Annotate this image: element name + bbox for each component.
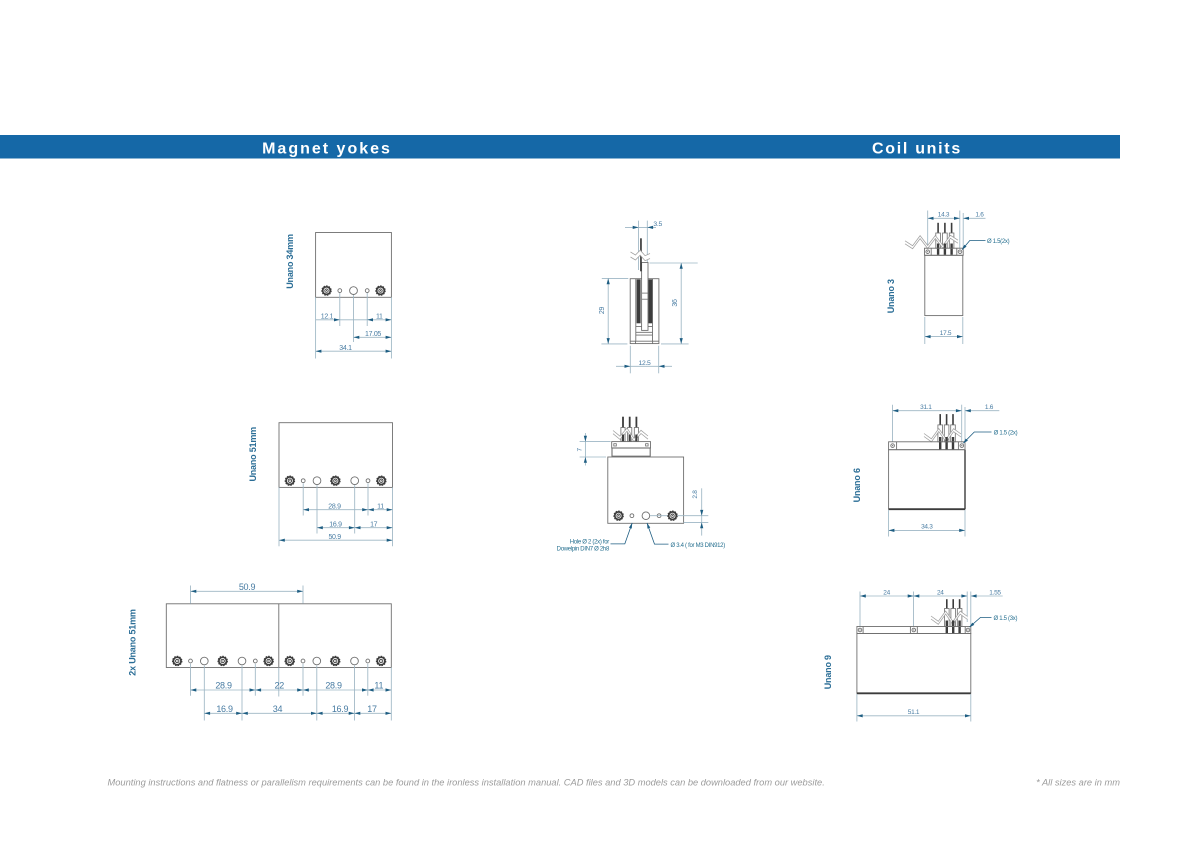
svg-text:11: 11 (376, 314, 383, 321)
svg-text:Ø 1.5 (3x): Ø 1.5 (3x) (994, 616, 1018, 622)
svg-text:2.8: 2.8 (692, 490, 699, 499)
svg-text:17.05: 17.05 (365, 331, 381, 338)
svg-text:31.1: 31.1 (920, 404, 932, 411)
svg-text:Unano 34mm: Unano 34mm (285, 234, 295, 289)
svg-text:50.9: 50.9 (239, 582, 256, 592)
svg-text:17: 17 (370, 521, 378, 528)
svg-text:16.9: 16.9 (216, 704, 233, 714)
svg-text:3.5: 3.5 (653, 221, 662, 228)
svg-text:14.3: 14.3 (938, 211, 950, 218)
svg-text:Unano 6: Unano 6 (852, 468, 862, 502)
svg-text:Coil units: Coil units (872, 141, 962, 158)
svg-text:28.9: 28.9 (325, 681, 342, 691)
svg-text:17.5: 17.5 (940, 330, 952, 337)
svg-text:34: 34 (273, 704, 283, 714)
svg-text:24: 24 (937, 589, 944, 596)
svg-text:24: 24 (883, 589, 890, 596)
svg-text:34.3: 34.3 (921, 524, 933, 531)
svg-text:51.1: 51.1 (908, 709, 920, 716)
svg-text:50.9: 50.9 (328, 534, 341, 541)
svg-text:22: 22 (274, 681, 284, 691)
svg-text:16.9: 16.9 (329, 521, 342, 528)
svg-text:Unano 3: Unano 3 (886, 279, 896, 313)
svg-text:1.6: 1.6 (985, 404, 994, 411)
svg-text:1.6: 1.6 (975, 211, 984, 218)
svg-text:29: 29 (599, 307, 606, 315)
svg-text:2x Unano 51mm: 2x Unano 51mm (128, 609, 138, 676)
svg-text:Hole Ø 2 (2x) for: Hole Ø 2 (2x) for (570, 539, 610, 545)
svg-text:11: 11 (374, 681, 383, 691)
svg-text:12.1: 12.1 (321, 314, 334, 321)
svg-text:34.1: 34.1 (339, 345, 352, 352)
svg-text:Magnet yokes: Magnet yokes (262, 141, 392, 158)
svg-text:16.9: 16.9 (332, 704, 349, 714)
svg-text:36: 36 (672, 299, 679, 307)
svg-text:1.55: 1.55 (989, 589, 1001, 596)
svg-text:Mounting instructions and flat: Mounting instructions and flatness or pa… (108, 778, 825, 788)
svg-text:Dowelpin DIN7 Ø 2h8: Dowelpin DIN7 Ø 2h8 (557, 546, 610, 552)
svg-text:Ø 1.5 (2x): Ø 1.5 (2x) (994, 430, 1018, 436)
svg-text:Unano 9: Unano 9 (823, 655, 833, 689)
svg-text:17: 17 (367, 704, 377, 714)
svg-text:Ø 1.5(2x): Ø 1.5(2x) (987, 239, 1010, 245)
svg-text:Unano 51mm: Unano 51mm (248, 427, 258, 482)
svg-text:28.9: 28.9 (215, 681, 232, 691)
svg-text:28.9: 28.9 (328, 503, 341, 510)
svg-text:Ø 3.4 ( for M3 DIN912): Ø 3.4 ( for M3 DIN912) (671, 543, 726, 549)
svg-text:11: 11 (377, 503, 384, 510)
svg-text:12.5: 12.5 (638, 360, 651, 367)
svg-text:* All sizes are in mm: * All sizes are in mm (1036, 778, 1120, 788)
